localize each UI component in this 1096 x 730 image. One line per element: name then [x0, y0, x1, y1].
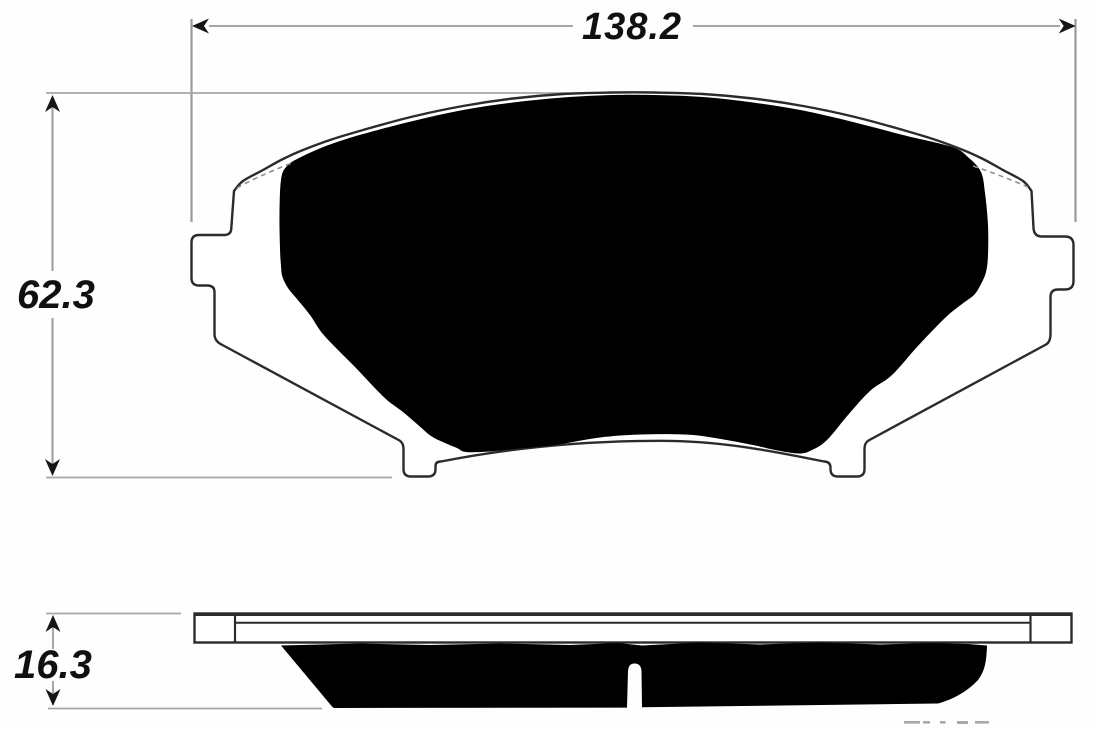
svg-text:16.3: 16.3	[14, 643, 92, 687]
svg-text:138.2: 138.2	[582, 6, 682, 48]
svg-text:62.3: 62.3	[17, 273, 95, 317]
